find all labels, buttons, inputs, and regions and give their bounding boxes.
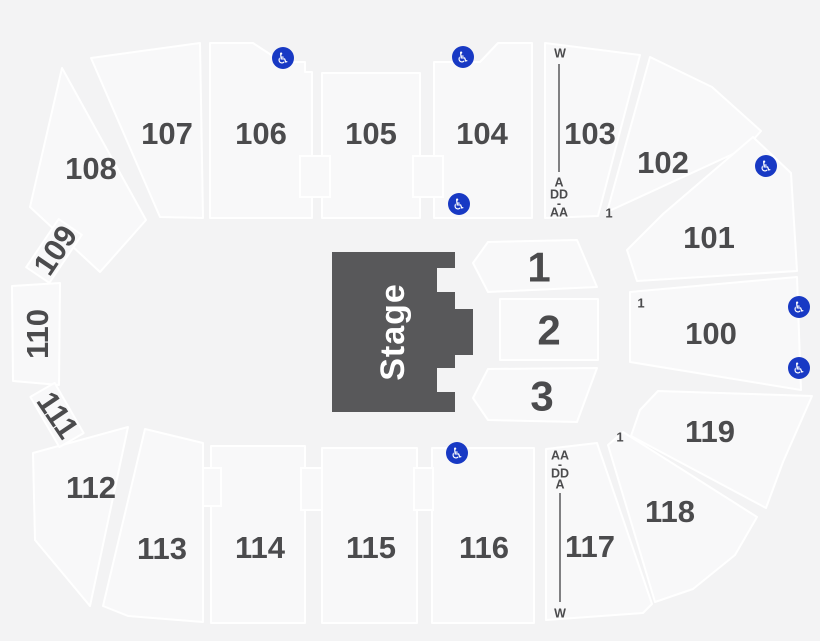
section-117-label: 117 — [565, 529, 615, 564]
section-112-label: 112 — [66, 470, 116, 505]
entrance-1-label: 1 — [637, 296, 644, 311]
accessible-seating-icon[interactable]: ♿ — [452, 46, 474, 68]
floor-section-1-label: 1 — [527, 244, 550, 291]
accessible-seating-icon[interactable]: ♿ — [446, 442, 468, 464]
wheelchair-glyph: ♿ — [450, 444, 463, 462]
row-w-label: W — [554, 46, 566, 60]
floor-section-3[interactable]: 3 — [473, 368, 597, 422]
row-a-label: A — [555, 477, 564, 491]
seating-map: 108 107 106 105 104 103 102 101 100 119 — [0, 0, 820, 641]
section-110[interactable]: 110 — [12, 283, 60, 385]
section-104-label: 104 — [456, 116, 508, 151]
wheelchair-glyph: ♿ — [276, 49, 289, 67]
accessible-seating-icon[interactable]: ♿ — [272, 47, 294, 69]
wheelchair-glyph: ♿ — [759, 157, 772, 175]
section-103-label: 103 — [564, 116, 616, 151]
wheelchair-glyph: ♿ — [452, 195, 465, 213]
entrance-1-label: 1 — [605, 206, 612, 221]
section-115-label: 115 — [346, 530, 396, 565]
section-107-label: 107 — [141, 116, 193, 151]
accessible-seating-icon[interactable]: ♿ — [448, 193, 470, 215]
wheelchair-glyph: ♿ — [456, 48, 469, 66]
section-102-label: 102 — [637, 145, 689, 180]
section-116-label: 116 — [459, 530, 509, 565]
floor-section-1[interactable]: 1 — [473, 240, 597, 292]
section-105[interactable]: 105 — [322, 73, 420, 218]
section-110-label: 110 — [20, 309, 55, 359]
stage-label: Stage — [374, 283, 412, 381]
row-aa-label: AA — [550, 205, 568, 219]
floor-section-2[interactable]: 2 — [500, 299, 598, 360]
section-118-label: 118 — [645, 494, 695, 529]
wheelchair-glyph: ♿ — [792, 298, 805, 316]
tunnel-notch — [300, 156, 330, 197]
section-116[interactable]: 116 — [432, 448, 534, 623]
section-114[interactable]: 114 — [211, 446, 305, 623]
tunnel-notch — [413, 156, 443, 197]
section-113-label: 113 — [137, 531, 187, 566]
floor-section-2-label: 2 — [537, 307, 560, 354]
tunnel-notch — [203, 468, 221, 506]
section-106[interactable]: 106 — [210, 43, 312, 218]
section-101-label: 101 — [683, 220, 735, 255]
wheelchair-glyph: ♿ — [792, 359, 805, 377]
floor-section-3-label: 3 — [530, 373, 553, 420]
section-119-label: 119 — [685, 414, 735, 449]
tunnel-notch — [414, 468, 433, 510]
tunnel-notch — [301, 468, 322, 510]
section-105-label: 105 — [345, 116, 397, 151]
section-104[interactable]: 104 — [434, 43, 532, 218]
accessible-seating-icon[interactable]: ♿ — [755, 155, 777, 177]
accessible-seating-icon[interactable]: ♿ — [788, 357, 810, 379]
section-115[interactable]: 115 — [322, 448, 417, 623]
section-114-label: 114 — [235, 530, 286, 565]
accessible-seating-icon[interactable]: ♿ — [788, 296, 810, 318]
section-100-label: 100 — [685, 316, 737, 351]
section-108-label: 108 — [65, 151, 117, 186]
entrance-1-label: 1 — [616, 430, 623, 445]
row-w-label: W — [554, 606, 566, 620]
section-106-label: 106 — [235, 116, 287, 151]
